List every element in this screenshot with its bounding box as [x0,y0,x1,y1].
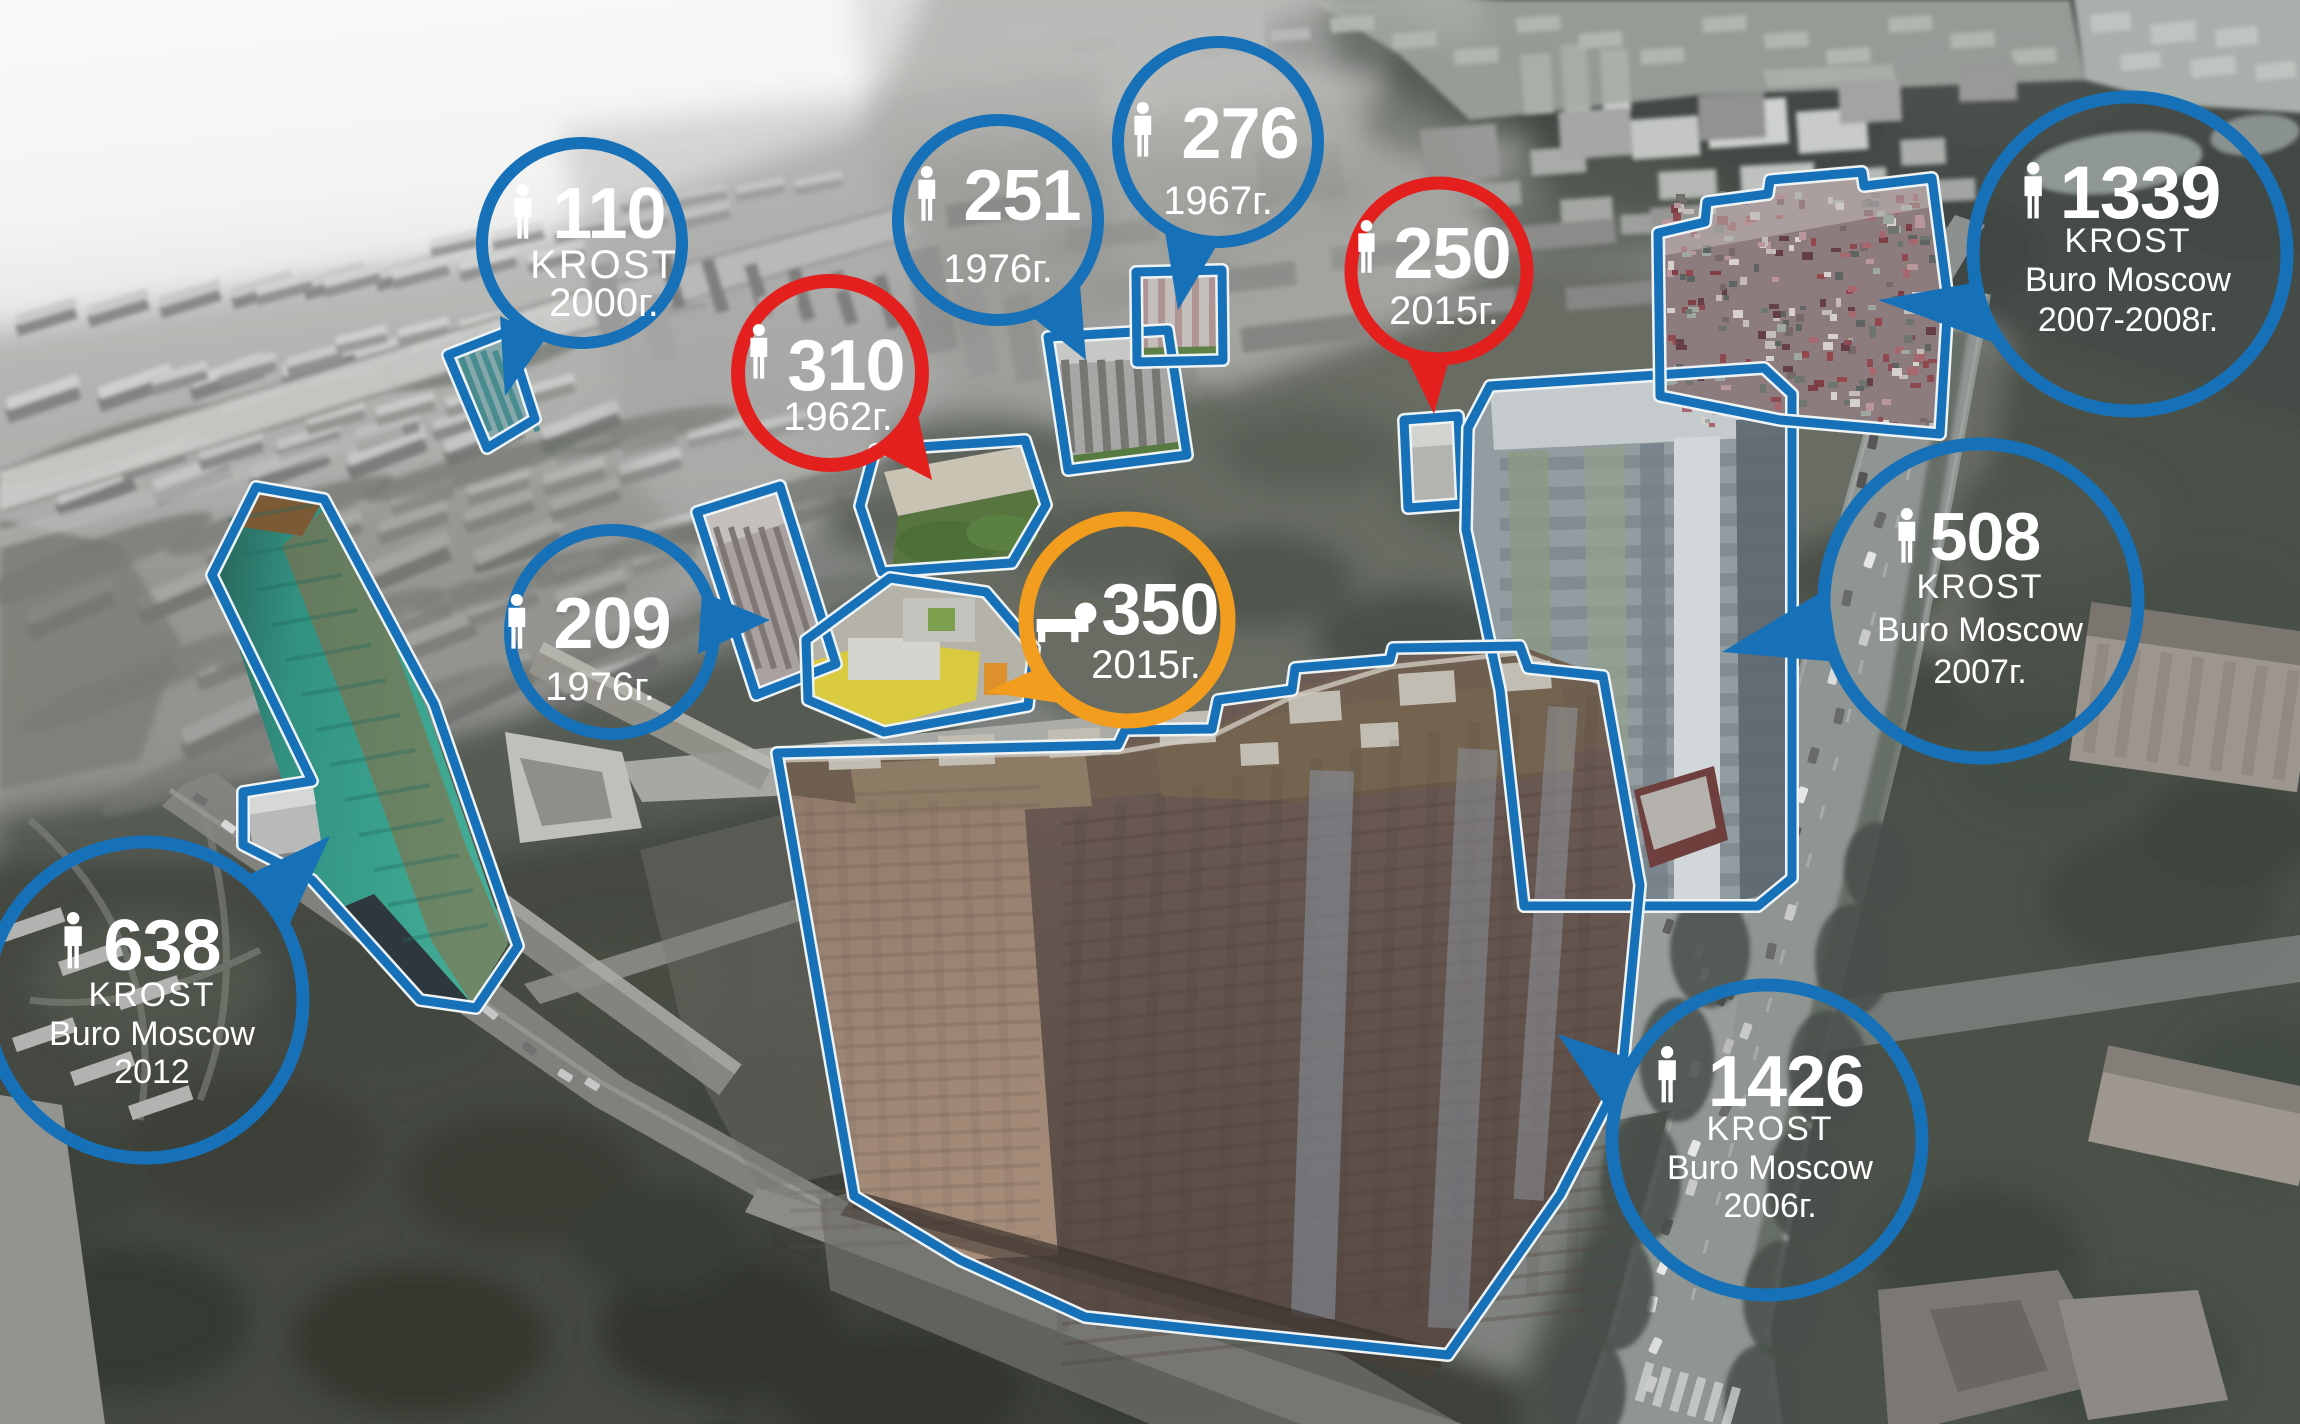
svg-text:2015г.: 2015г. [1091,643,1201,687]
svg-text:2007-2008г.: 2007-2008г. [2038,301,2218,339]
svg-text:Buro Moscow: Buro Moscow [2025,261,2231,299]
svg-text:KROST: KROST [1916,568,2043,606]
svg-text:638: 638 [103,906,220,986]
svg-text:KROST: KROST [88,976,215,1014]
svg-text:KROST: KROST [1706,1110,1833,1148]
svg-text:Buro Moscow: Buro Moscow [1667,1149,1873,1187]
svg-text:2012: 2012 [114,1053,190,1091]
svg-text:1962г.: 1962г. [783,395,893,439]
svg-text:Buro Moscow: Buro Moscow [49,1015,255,1053]
svg-text:276: 276 [1181,94,1298,174]
svg-text:2015г.: 2015г. [1389,289,1499,333]
svg-text:110: 110 [552,174,665,254]
svg-text:1976г.: 1976г. [545,665,655,709]
svg-text:310: 310 [787,326,904,406]
svg-text:209: 209 [553,584,670,664]
svg-text:251: 251 [963,156,1080,236]
svg-text:250: 250 [1393,214,1510,294]
svg-text:350: 350 [1101,570,1218,650]
svg-text:2000г.: 2000г. [549,281,659,325]
svg-text:508: 508 [1930,499,2040,575]
svg-text:1967г.: 1967г. [1163,179,1273,223]
svg-text:KROST: KROST [2064,222,2191,260]
svg-text:2006г.: 2006г. [1723,1187,1816,1225]
svg-text:2007г.: 2007г. [1933,653,2026,691]
svg-text:1976г.: 1976г. [943,247,1053,291]
svg-text:Buro Moscow: Buro Moscow [1877,611,2083,649]
